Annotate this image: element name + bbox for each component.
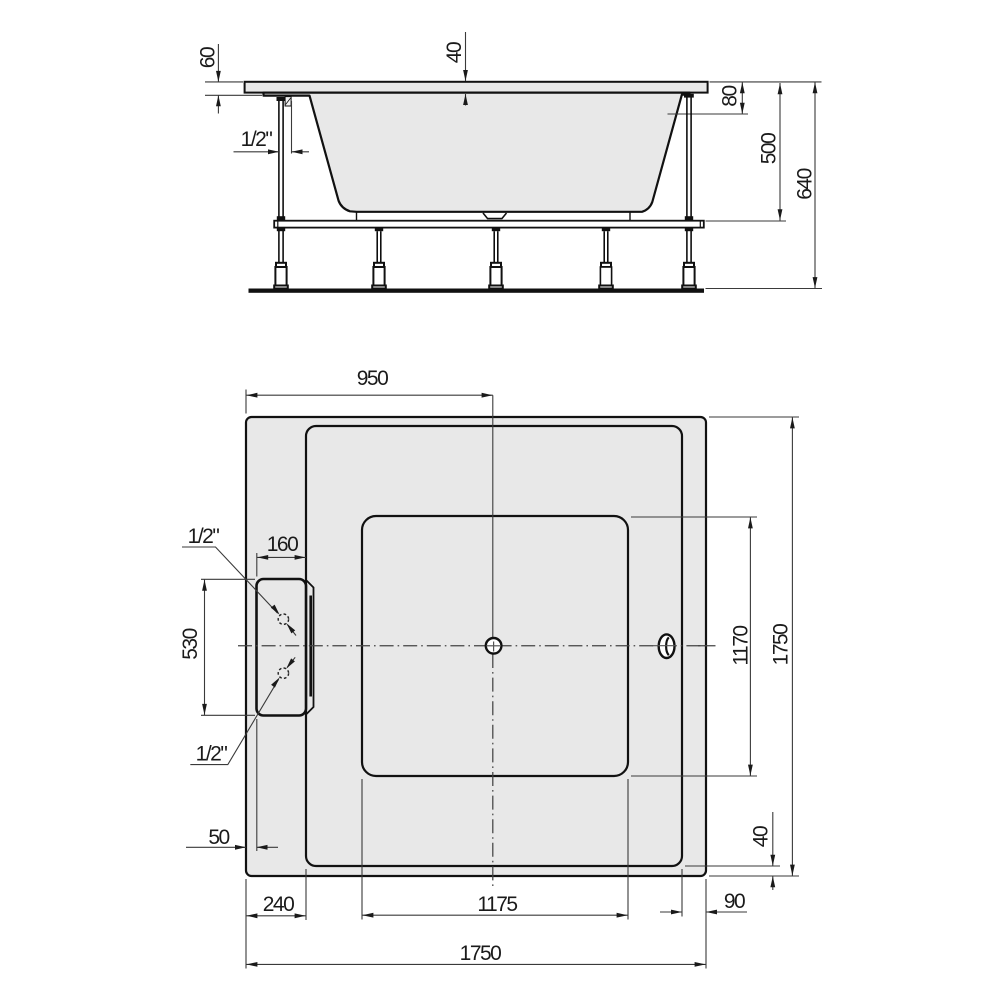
svg-text:1/2": 1/2": [241, 128, 273, 151]
svg-text:50: 50: [208, 826, 229, 849]
svg-text:160: 160: [267, 533, 298, 556]
svg-text:40: 40: [749, 826, 772, 847]
svg-text:1750: 1750: [460, 942, 502, 965]
svg-text:1/2": 1/2": [196, 743, 228, 766]
svg-text:60: 60: [196, 47, 219, 68]
svg-text:500: 500: [757, 133, 780, 164]
svg-text:240: 240: [263, 893, 294, 916]
svg-text:530: 530: [179, 628, 202, 659]
svg-text:950: 950: [357, 367, 388, 390]
svg-text:1/2": 1/2": [188, 525, 220, 548]
svg-text:1170: 1170: [729, 626, 752, 666]
svg-text:40: 40: [443, 42, 466, 63]
svg-text:1175: 1175: [477, 893, 517, 916]
svg-text:80: 80: [718, 86, 741, 107]
svg-text:90: 90: [724, 890, 745, 913]
svg-text:640: 640: [793, 168, 816, 199]
svg-text:1750: 1750: [769, 624, 792, 666]
